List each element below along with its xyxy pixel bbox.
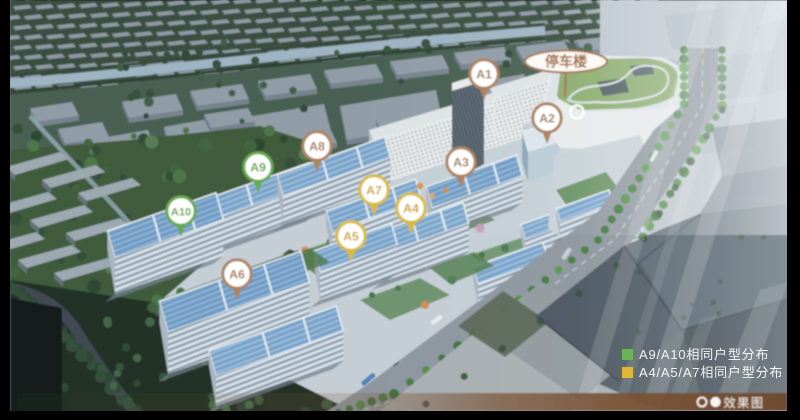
- svg-text:A7: A7: [366, 184, 382, 198]
- svg-text:A10: A10: [171, 207, 192, 219]
- svg-text:A4: A4: [403, 202, 419, 216]
- svg-text:A6: A6: [229, 268, 245, 282]
- svg-text:A1: A1: [476, 68, 492, 82]
- svg-text:A2: A2: [539, 112, 555, 126]
- svg-text:A4/A5/A7相同户型分布: A4/A5/A7相同户型分布: [639, 365, 783, 380]
- svg-text:A9/A10相同户型分布: A9/A10相同户型分布: [639, 347, 769, 362]
- svg-text:效果图: 效果图: [724, 395, 765, 410]
- svg-text:A5: A5: [343, 230, 359, 244]
- svg-text:A8: A8: [309, 140, 325, 154]
- svg-text:停车楼: 停车楼: [545, 54, 587, 70]
- svg-text:A3: A3: [453, 156, 469, 170]
- svg-text:A9: A9: [250, 161, 266, 175]
